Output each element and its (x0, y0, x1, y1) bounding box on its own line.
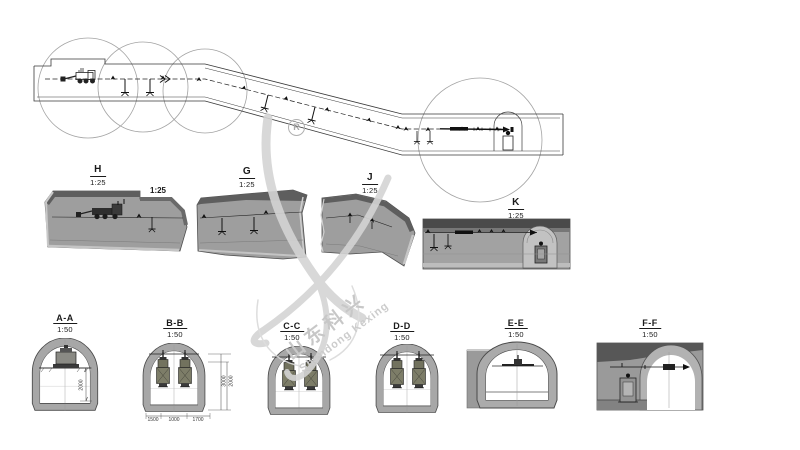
section-label-ee: E-E 1:50 (505, 319, 528, 339)
section-label-ff: F-F 1:50 (639, 319, 661, 339)
detail-j-name: J (362, 173, 378, 185)
plan-vehicle (61, 69, 95, 83)
bb-dim-height-2: 2000 (229, 375, 235, 386)
plan-cable-hangers (121, 79, 433, 144)
detail-h-name: H (90, 165, 106, 177)
cross-section-a (32, 338, 97, 410)
cross-section-f (597, 343, 703, 410)
section-j (321, 194, 415, 266)
bb-dim-width-1: 1500 (147, 417, 158, 423)
cross-section-d (376, 344, 438, 412)
cross-section-b (143, 343, 231, 419)
ff-cabinet (618, 374, 638, 403)
section-ff-name: F-F (639, 319, 661, 329)
section-ee-name: E-E (505, 319, 528, 329)
section-k (423, 219, 570, 269)
registered-trademark-icon: R (288, 119, 305, 136)
aa-dim-height: 2000 (79, 379, 85, 390)
section-g (197, 190, 307, 259)
detail-g-name: G (239, 167, 255, 179)
plan-tunnel-outline (34, 59, 563, 155)
plan-cable-anchors (111, 76, 500, 132)
bb-dim-width-2: 1000 (168, 417, 179, 423)
section-label-bb: B-B 1:50 (163, 319, 187, 339)
cross-section-e (467, 342, 557, 408)
detail-label-j: J 1:25 (362, 173, 378, 195)
detail-h-scale: 1:25 (90, 177, 106, 187)
section-label-aa: A-A 1:50 (53, 314, 77, 334)
drawing-canvas (0, 0, 800, 450)
bb-dim-height-1: 3000 (222, 375, 228, 386)
detail-k-scale: 1:25 (508, 210, 524, 220)
section-label-dd: D-D 1:50 (390, 322, 414, 342)
detail-j-scale: 1:25 (362, 185, 378, 195)
bb-dim-width-3: 1700 (192, 417, 203, 423)
detail-g-scale: 1:25 (239, 179, 255, 189)
detail-label-h: H 1:25 (90, 165, 106, 187)
detail-callout-circles (38, 38, 542, 202)
plan-extra-scale-label: 1:25 (150, 186, 166, 195)
section-aa-name: A-A (53, 314, 77, 324)
section-bb-scale: 1:50 (163, 329, 187, 339)
section-dd-scale: 1:50 (390, 332, 414, 342)
detail-k-name: K (508, 198, 524, 210)
section-ff-scale: 1:50 (639, 329, 661, 339)
detail-label-g: G 1:25 (239, 167, 255, 189)
section-aa-scale: 1:50 (53, 324, 77, 334)
section-dd-name: D-D (390, 322, 414, 332)
section-bb-name: B-B (163, 319, 187, 329)
plan-busbar (440, 127, 514, 133)
section-h (45, 191, 187, 251)
tunnel-drawing-sheet: H 1:25 1:25 G 1:25 J 1:25 K 1:25 A-A 1:5… (0, 0, 800, 450)
section-ee-scale: 1:50 (505, 329, 528, 339)
detail-label-k: K 1:25 (508, 198, 524, 220)
